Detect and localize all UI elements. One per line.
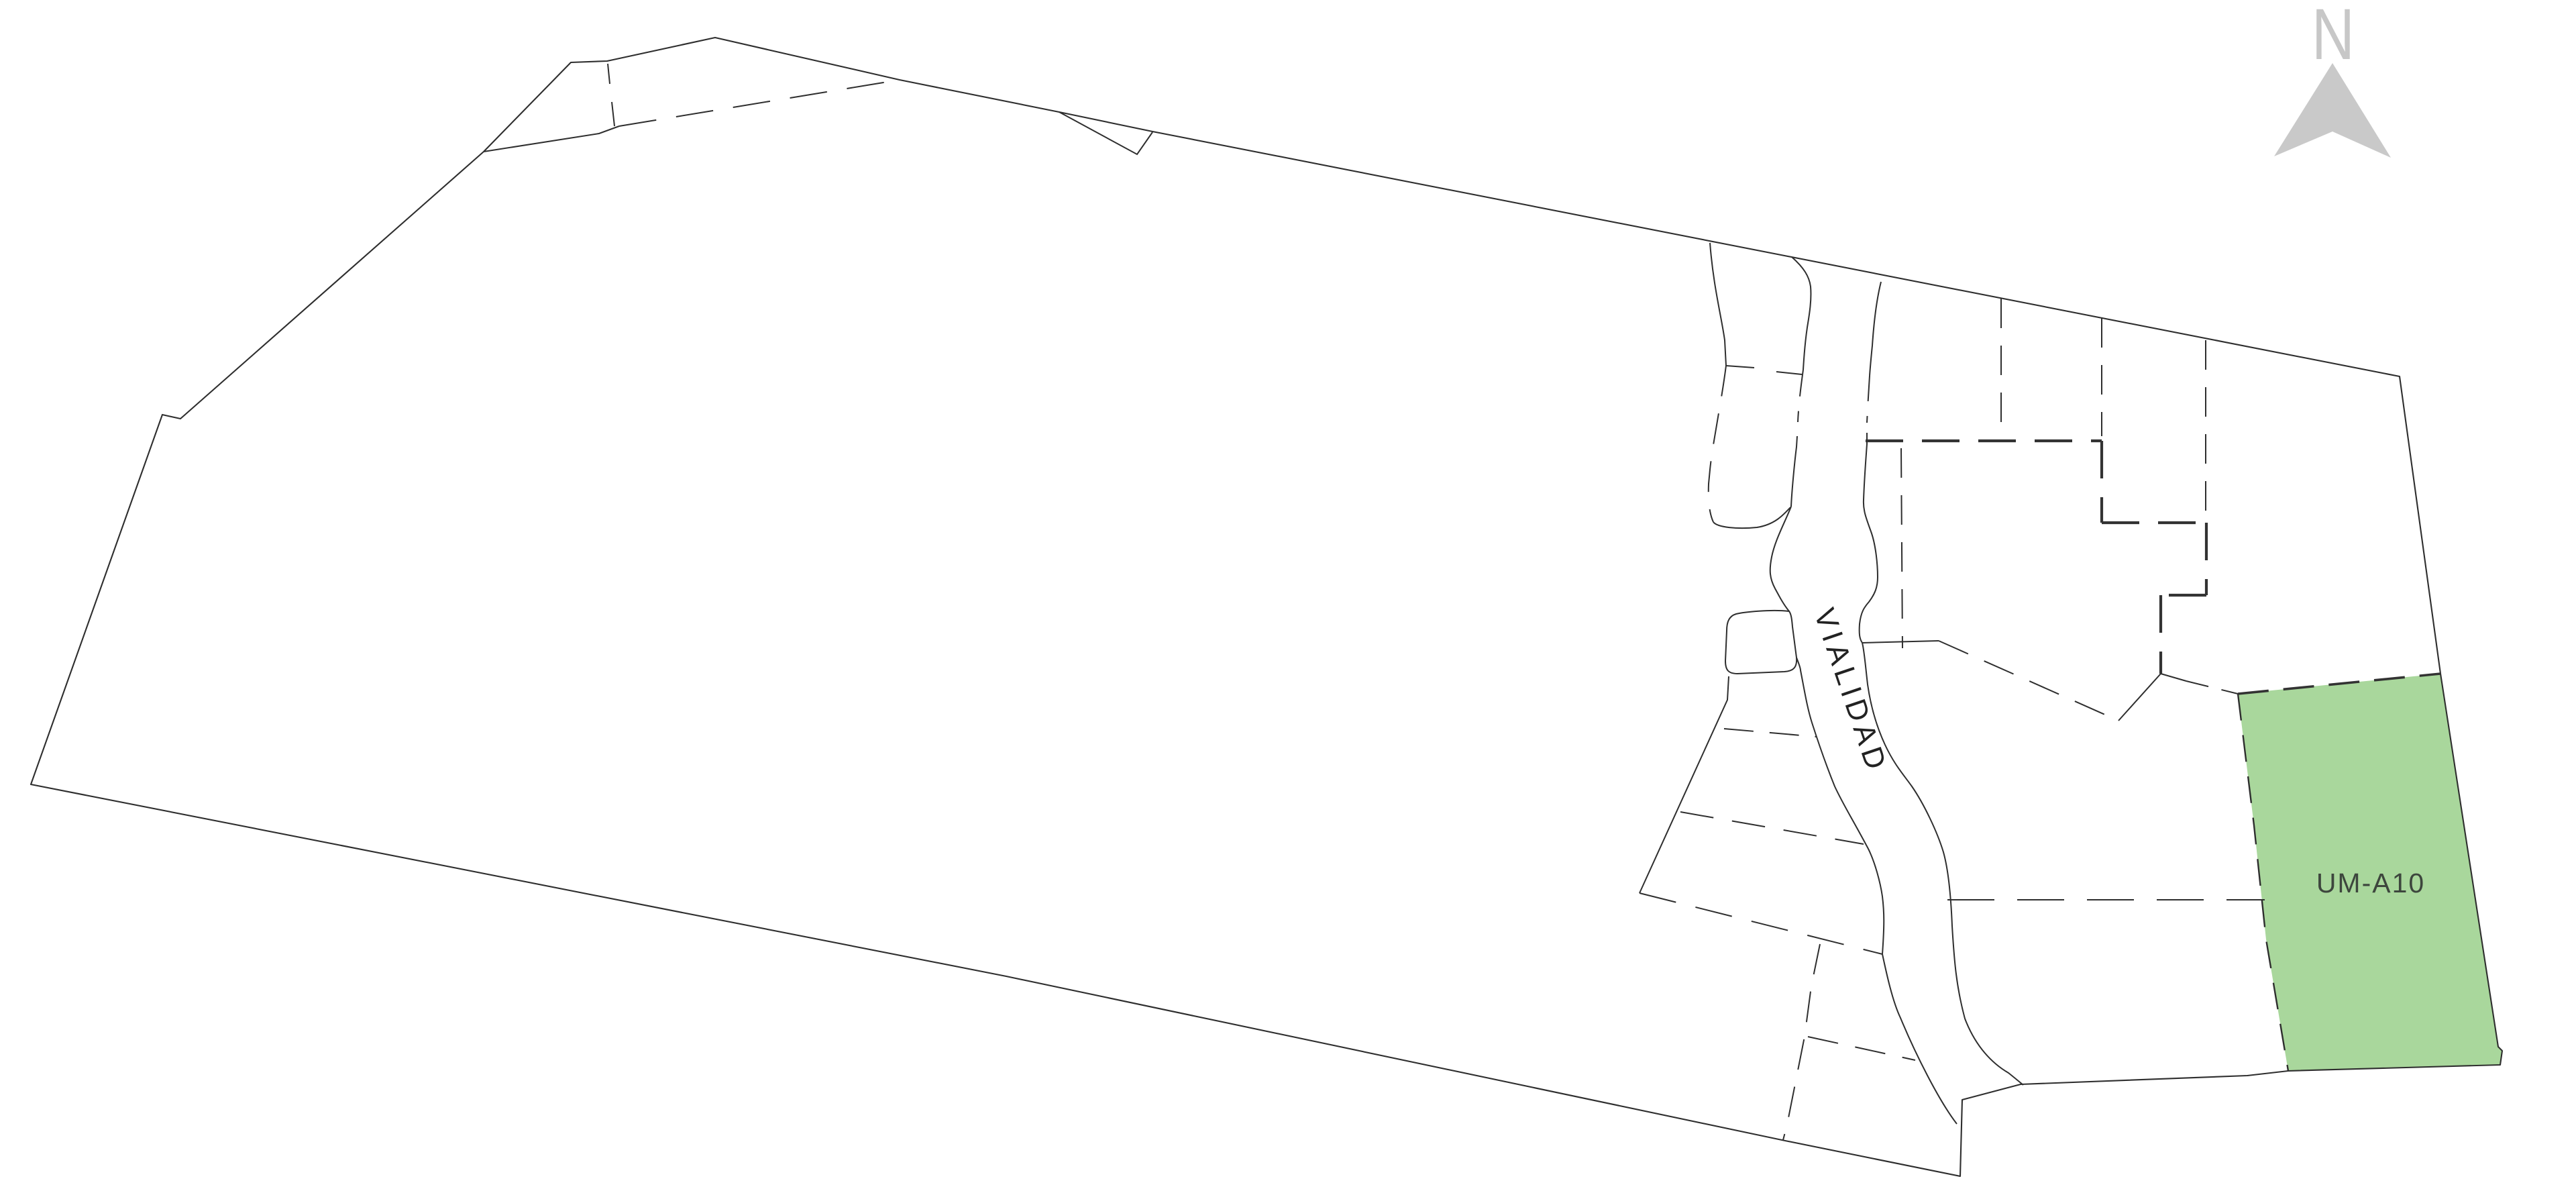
svg-text:UM-A10: UM-A10 — [2316, 868, 2425, 898]
svg-text:N: N — [2312, 0, 2355, 74]
